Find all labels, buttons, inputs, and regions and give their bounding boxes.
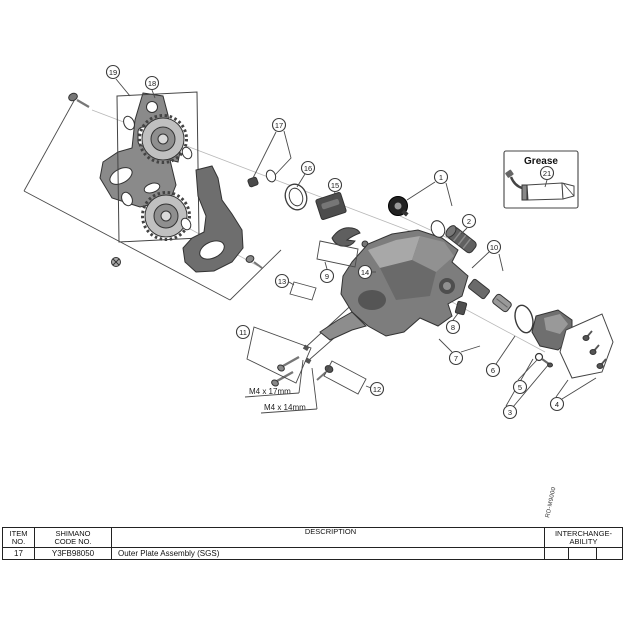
svg-text:2: 2 [467, 217, 471, 226]
callout-2: 2 [463, 215, 476, 228]
plate-screw-on-line [112, 258, 121, 267]
parts-catalog-page: Grease [0, 0, 626, 626]
svg-text:19: 19 [109, 68, 117, 77]
adjust-screw [317, 364, 334, 380]
svg-text:21: 21 [543, 169, 551, 178]
svg-text:14: 14 [361, 268, 369, 277]
callout-7: 7 [450, 352, 463, 365]
stopper-pin [536, 354, 553, 368]
svg-text:9: 9 [325, 272, 329, 281]
callout-5: 5 [514, 381, 527, 394]
gasket-ring [282, 181, 310, 212]
cage-washer [265, 169, 278, 183]
svg-text:18: 18 [148, 79, 156, 88]
callout-12: 12 [371, 383, 384, 396]
grease-label: Grease [524, 156, 558, 167]
header-item-no: ITEMNO. [3, 528, 34, 548]
callout-17: 17 [273, 119, 286, 132]
header-interchangeability: INTERCHANGE-ABILITY [544, 528, 622, 548]
clutch-spring [468, 279, 491, 300]
row-item-no: 17 [3, 548, 34, 559]
row-interchangeability-1 [544, 548, 568, 559]
svg-text:1: 1 [439, 173, 443, 182]
callout-4: 4 [551, 398, 564, 411]
callout-10: 10 [488, 241, 501, 254]
svg-text:5: 5 [518, 383, 522, 392]
cam-ring [389, 197, 409, 217]
svg-text:8: 8 [451, 323, 455, 332]
svg-text:3: 3 [508, 408, 512, 417]
outer-plate [183, 166, 243, 272]
outer-plate-screw [245, 254, 262, 268]
callout-13: 13 [276, 275, 289, 288]
callout-15: 15 [329, 179, 342, 192]
row-shimano-code: Y3FB98050 [34, 548, 111, 559]
callout-9: 9 [321, 270, 334, 283]
svg-text:10: 10 [490, 243, 498, 252]
svg-text:13: 13 [278, 277, 286, 286]
svg-text:15: 15 [331, 181, 339, 190]
callout-8: 8 [447, 321, 460, 334]
clutch-roller [492, 293, 513, 313]
svg-text:16: 16 [304, 164, 312, 173]
m4x17-label: M4 x 17mm [249, 387, 291, 396]
clutch-block [455, 301, 467, 315]
callout-14: 14 [359, 266, 372, 279]
svg-text:12: 12 [373, 385, 381, 394]
model-code-vertical: RD-M9000 [545, 486, 557, 518]
svg-text:11: 11 [239, 328, 247, 337]
row-interchangeability-3 [596, 548, 622, 559]
svg-text:6: 6 [491, 366, 495, 375]
callout-18: 18 [146, 77, 159, 90]
plate-screw-top-left [67, 92, 89, 107]
callout-6: 6 [487, 364, 500, 377]
row-description: Outer Plate Assembly (SGS) [111, 548, 544, 559]
grease-box: Grease [504, 151, 578, 208]
header-description: DESCRIPTION [111, 528, 544, 548]
callout-1: 1 [435, 171, 448, 184]
row-interchangeability-2 [568, 548, 596, 559]
parts-table: ITEMNO. SHIMANOCODE NO. DESCRIPTION INTE… [2, 527, 623, 560]
callout-21: 21 [541, 167, 554, 180]
callout-19: 19 [107, 66, 120, 79]
clutch-cylinder [315, 192, 346, 220]
callout-3: 3 [504, 406, 517, 419]
svg-text:7: 7 [454, 354, 458, 363]
callout-11: 11 [237, 326, 250, 339]
svg-text:4: 4 [555, 400, 559, 409]
callout-16: 16 [302, 162, 315, 175]
header-shimano-code: SHIMANOCODE NO. [34, 528, 111, 548]
cage-nut [247, 177, 258, 188]
svg-text:17: 17 [275, 121, 283, 130]
